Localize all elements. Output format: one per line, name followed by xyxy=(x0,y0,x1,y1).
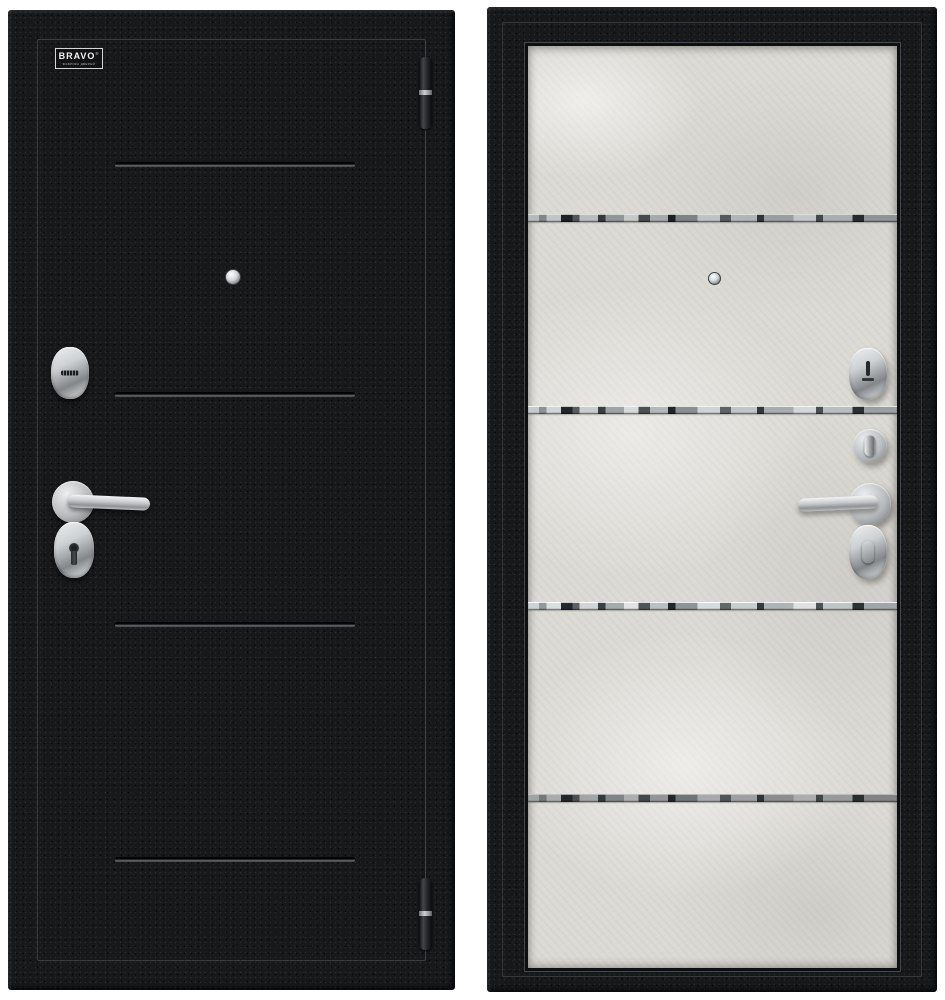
product-image: { "product": { "logo": { "text": "BRAVO"… xyxy=(0,0,945,1000)
bravo-logo: BRAVO® ФАБРИКА ДВЕРЕЙ xyxy=(55,48,103,69)
door-exterior-panel: BRAVO® ФАБРИКА ДВЕРЕЙ xyxy=(8,10,455,990)
mirror-strip xyxy=(528,794,897,802)
groove-line xyxy=(115,392,355,397)
key-slot-icon xyxy=(61,371,79,376)
groove-line xyxy=(115,857,355,862)
slot-escutcheon xyxy=(849,348,887,400)
keyhole-escutcheon xyxy=(54,522,94,578)
thumbturn-cylinder xyxy=(853,429,887,463)
mirror-strip xyxy=(528,602,897,610)
cylinder-escutcheon xyxy=(51,347,89,399)
hinge-band xyxy=(419,90,432,95)
peephole-icon xyxy=(708,272,721,285)
mirror-strip xyxy=(528,214,897,222)
peephole-icon xyxy=(225,269,241,285)
mirror-strip xyxy=(528,406,897,414)
thumbturn-escutcheon xyxy=(849,525,887,579)
door-interior-panel xyxy=(487,7,937,992)
groove-line xyxy=(115,162,355,167)
horizontal-slot-icon xyxy=(862,378,874,381)
logo-text: BRAVO® xyxy=(59,52,100,61)
thumbturn-knob xyxy=(862,541,874,564)
hinge-top xyxy=(419,57,432,129)
thumbturn-knob xyxy=(865,436,876,457)
registered-mark-icon: ® xyxy=(95,51,99,56)
groove-line xyxy=(115,622,355,627)
hinge-bottom xyxy=(419,878,432,950)
vertical-slot-icon xyxy=(866,361,870,376)
logo-subtext: ФАБРИКА ДВЕРЕЙ xyxy=(63,62,96,65)
keyhole-stem xyxy=(71,551,77,565)
hinge-band xyxy=(419,911,432,916)
